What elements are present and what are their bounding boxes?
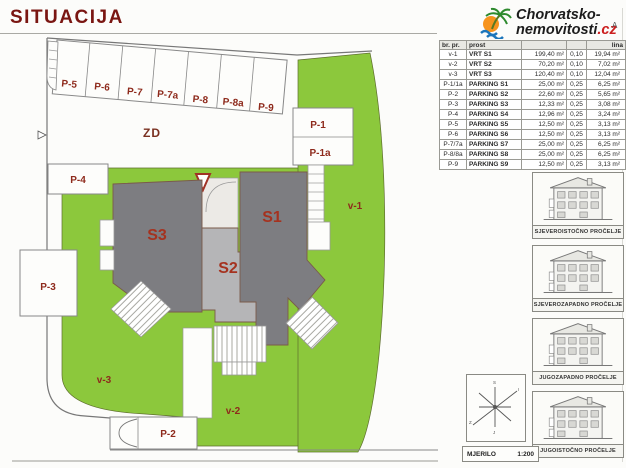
table-cell: PARKING S8 — [467, 150, 522, 160]
table-cell: 3,08 m² — [587, 100, 626, 110]
table-cell: 0,10 — [567, 60, 587, 70]
terrace-s2 — [214, 326, 266, 362]
facade-drawing — [533, 246, 623, 298]
table-cell: P-7/7a — [440, 140, 467, 150]
table-cell: P-5 — [440, 120, 467, 130]
entry-court — [202, 178, 238, 230]
building-label-s3: S3 — [147, 227, 167, 244]
table-cell: 6,25 m² — [587, 150, 626, 160]
table-row: v-2VRT S270,20 m²0,107,02 m² — [440, 60, 626, 70]
company-logo: Chorvatsko- nemovitosti.cz — [478, 6, 624, 40]
retaining-wall — [47, 41, 58, 90]
table-header-cell — [567, 41, 587, 50]
table-cell: 0,25 — [567, 110, 587, 120]
facade-drawing — [533, 392, 623, 444]
parking-spot-label-p1a: P-1a — [309, 148, 331, 159]
parking-spot-label-p2: P-2 — [160, 429, 176, 440]
table-cell: PARKING S3 — [467, 100, 522, 110]
table-cell: v-3 — [440, 70, 467, 80]
driveway-label-zd: ZD — [143, 126, 161, 140]
parking-spot-p2: P-2 — [110, 417, 197, 449]
balcony — [100, 220, 114, 246]
scanned-site-plan-page: SITUACIJA — [0, 0, 626, 468]
scale-value: 1:200 — [517, 451, 534, 458]
site-plan: P-5 P-6 P-7 P-7a P-8 P-8a P-9 ZD P-4 P-3 — [0, 0, 440, 468]
facade-panel-southwest: JUGOZAPADNO PROČELJE — [532, 318, 624, 385]
table-cell: 6,25 m² — [587, 80, 626, 90]
table-cell: 199,40 m² — [522, 50, 567, 60]
table-cell: 0,10 — [567, 50, 587, 60]
table-cell: 12,04 m² — [587, 70, 626, 80]
table-cell: 0,25 — [567, 100, 587, 110]
table-row: P-6PARKING S612,50 m²0,253,13 m² — [440, 130, 626, 140]
parking-spot-label-p5: P-5 — [61, 79, 78, 91]
table-row: P-4PARKING S412,96 m²0,253,24 m² — [440, 110, 626, 120]
parking-spot-label-p8a: P-8a — [222, 97, 244, 110]
table-cell: 3,13 m² — [587, 160, 626, 170]
table-cell: PARKING S1 — [467, 80, 522, 90]
table-header-cell: prost — [467, 41, 522, 50]
table-cell: 0,25 — [567, 130, 587, 140]
table-cell: 25,00 m² — [522, 150, 567, 160]
svg-text:Z: Z — [469, 420, 472, 425]
table-cell: P-2 — [440, 90, 467, 100]
table-cell: 12,50 m² — [522, 130, 567, 140]
parking-spot-label-p9: P-9 — [258, 102, 275, 114]
facade-drawing — [533, 173, 623, 225]
table-cell: 12,33 m² — [522, 100, 567, 110]
table-row: P-2PARKING S222,60 m²0,255,65 m² — [440, 90, 626, 100]
table-header-cell: lina — [587, 41, 626, 50]
table-cell: 120,40 m² — [522, 70, 567, 80]
table-cell: P-3 — [440, 100, 467, 110]
svg-text:J: J — [493, 430, 495, 435]
table-cell: 0,25 — [567, 120, 587, 130]
balcony — [100, 250, 114, 270]
table-cell: 0,25 — [567, 80, 587, 90]
palm-tree-icon — [478, 7, 512, 39]
facade-drawing — [533, 319, 623, 371]
facade-panel-northeast: SJEVEROISTOČNO PROČELJE — [532, 172, 624, 239]
parking-spot-label-p8: P-8 — [192, 94, 209, 106]
compass-rose-icon: ZI SJ — [467, 375, 523, 439]
scale-bar: MJERILO 1:200 — [462, 446, 539, 462]
parking-spot-label-p7: P-7 — [126, 86, 143, 98]
facade-caption: SJEVEROISTOČNO PROČELJE — [532, 226, 624, 239]
garden-label-v3: v-3 — [97, 375, 112, 386]
table-cell: VRT S2 — [467, 60, 522, 70]
facade-caption: SJEVEROZAPADNO PROČELJE — [532, 299, 624, 312]
table-cell: PARKING S4 — [467, 110, 522, 120]
parking-spot-label-p6: P-6 — [94, 81, 111, 93]
parking-strip: P-5 P-6 P-7 P-7a P-8 P-8a P-9 — [52, 40, 287, 115]
table-cell: PARKING S2 — [467, 90, 522, 100]
table-cell: v-2 — [440, 60, 467, 70]
boundary-marker-icon — [38, 131, 46, 139]
walkway — [183, 328, 212, 418]
balcony — [308, 222, 330, 250]
stairs — [308, 165, 324, 227]
table-row: P-9PARKING S912,50 m²0,253,13 m² — [440, 160, 626, 170]
parking-spot-label-p7a: P-7a — [157, 89, 179, 102]
table-header-cell: br. pr. — [440, 41, 467, 50]
table-row: P-8/8aPARKING S825,00 m²0,256,25 m² — [440, 150, 626, 160]
facade-panel-southeast: JUGOISTOČNO PROČELJE — [532, 391, 624, 458]
parking-spot-label-p4: P-4 — [70, 175, 86, 186]
table-row: P-7/7aPARKING S725,00 m²0,256,25 m² — [440, 140, 626, 150]
table-cell: VRT S1 — [467, 50, 522, 60]
scale-label: MJERILO — [467, 451, 496, 458]
table-cell: PARKING S6 — [467, 130, 522, 140]
table-cell: P-1/1a — [440, 80, 467, 90]
facade-panel-northwest: SJEVEROZAPADNO PROČELJE — [532, 245, 624, 312]
table-cell: 7,02 m² — [587, 60, 626, 70]
table-row: v-1VRT S1199,40 m²0,1019,94 m² — [440, 50, 626, 60]
table-cell: P-6 — [440, 130, 467, 140]
area-table: br. pr. prost lina v-1VRT S1199,40 m²0,1… — [439, 40, 626, 170]
logo-text-line1: Chorvatsko- — [516, 8, 617, 23]
table-row: P-3PARKING S312,33 m²0,253,08 m² — [440, 100, 626, 110]
building-label-s2: S2 — [218, 260, 238, 277]
table-cell: P-4 — [440, 110, 467, 120]
terrace-s2-lower — [222, 362, 256, 375]
parking-spot-label-p1: P-1 — [310, 120, 326, 131]
table-row: v-3VRT S3120,40 m²0,1012,04 m² — [440, 70, 626, 80]
svg-text:S: S — [493, 380, 496, 385]
table-row: P-5PARKING S512,50 m²0,253,13 m² — [440, 120, 626, 130]
table-cell: PARKING S9 — [467, 160, 522, 170]
table-cell: 3,24 m² — [587, 110, 626, 120]
parking-spot-p1-p1a: P-1 P-1a — [293, 108, 353, 165]
table-cell: 3,13 m² — [587, 130, 626, 140]
table-cell: 0,25 — [567, 150, 587, 160]
table-cell: 70,20 m² — [522, 60, 567, 70]
table-cell: PARKING S5 — [467, 120, 522, 130]
building-label-s1: S1 — [262, 209, 282, 226]
facade-caption: JUGOZAPADNO PROČELJE — [532, 372, 624, 385]
table-cell: 12,50 m² — [522, 120, 567, 130]
table-cell: 0,25 — [567, 90, 587, 100]
table-cell: VRT S3 — [467, 70, 522, 80]
table-cell: P-9 — [440, 160, 467, 170]
svg-text:I: I — [518, 387, 519, 392]
garden-label-v2: v-2 — [226, 406, 241, 417]
table-cell: 3,13 m² — [587, 120, 626, 130]
table-cell: 25,00 m² — [522, 80, 567, 90]
table-cell: 0,25 — [567, 160, 587, 170]
compass-box: ZI SJ — [466, 374, 526, 442]
table-cell: 12,96 m² — [522, 110, 567, 120]
table-cell: v-1 — [440, 50, 467, 60]
table-cell: 25,00 m² — [522, 140, 567, 150]
table-cell: 0,10 — [567, 70, 587, 80]
facade-caption: JUGOISTOČNO PROČELJE — [532, 445, 624, 458]
parking-spot-label-p3: P-3 — [40, 282, 56, 293]
table-cell: 22,60 m² — [522, 90, 567, 100]
table-header-row: br. pr. prost lina — [440, 41, 626, 50]
table-cell: 0,25 — [567, 140, 587, 150]
table-row: P-1/1aPARKING S125,00 m²0,256,25 m² — [440, 80, 626, 90]
garden-label-v1: v-1 — [348, 201, 363, 212]
table-header-cell — [522, 41, 567, 50]
table-cell: 6,25 m² — [587, 140, 626, 150]
corner-letter: A — [612, 21, 617, 30]
table-cell: 12,50 m² — [522, 160, 567, 170]
table-cell: 5,65 m² — [587, 90, 626, 100]
table-cell: PARKING S7 — [467, 140, 522, 150]
logo-text-line2: nemovitosti — [516, 22, 597, 38]
table-cell: 19,94 m² — [587, 50, 626, 60]
table-cell: P-8/8a — [440, 150, 467, 160]
building-s3 — [113, 180, 202, 312]
